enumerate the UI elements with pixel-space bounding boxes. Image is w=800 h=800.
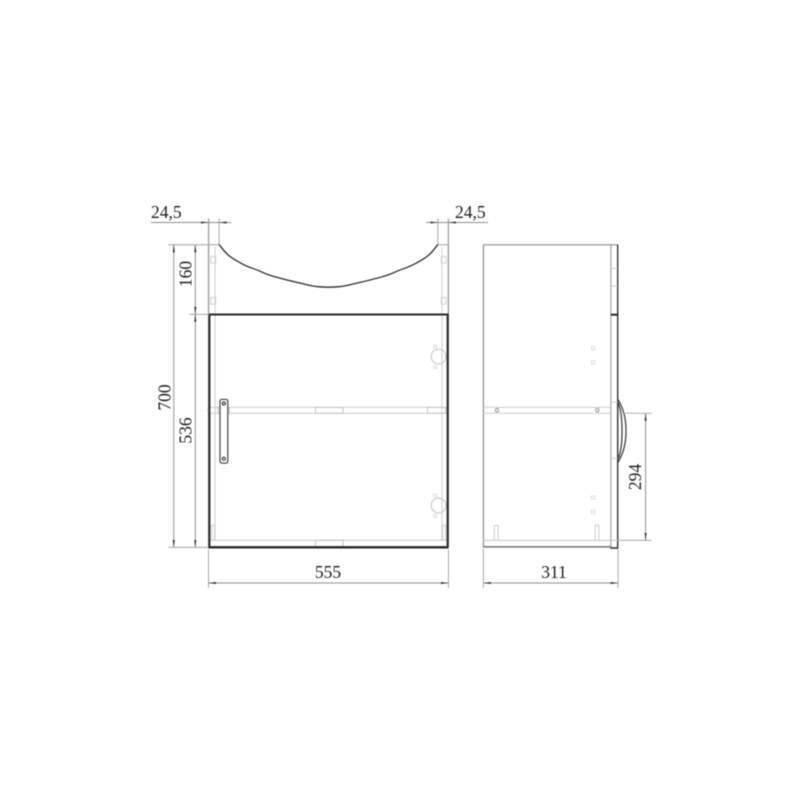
svg-text:555: 555 bbox=[315, 562, 342, 582]
svg-text:700: 700 bbox=[154, 384, 174, 411]
svg-text:24,5: 24,5 bbox=[455, 202, 486, 222]
svg-text:536: 536 bbox=[176, 417, 196, 444]
svg-text:311: 311 bbox=[541, 562, 567, 582]
svg-text:160: 160 bbox=[176, 261, 196, 288]
svg-text:24,5: 24,5 bbox=[151, 202, 182, 222]
svg-text:294: 294 bbox=[625, 464, 645, 491]
